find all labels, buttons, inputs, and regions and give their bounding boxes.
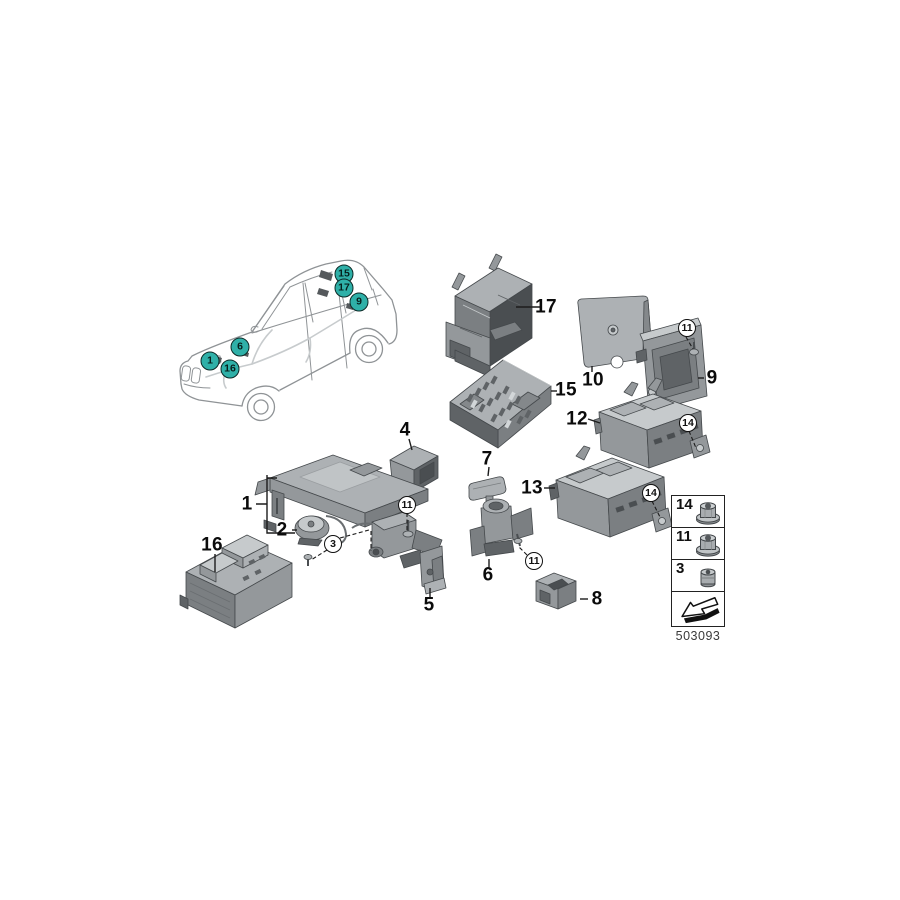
part-label-9-3[interactable]: 9 <box>707 369 718 388</box>
part-6-drawing <box>470 499 533 556</box>
fastener-callout-11-0[interactable]: 11 <box>678 319 696 337</box>
legend-label: 3 <box>676 561 684 578</box>
part-15-drawing <box>450 360 551 448</box>
part-label-4-6[interactable]: 4 <box>400 421 411 440</box>
legend-row-11[interactable]: 11 <box>672 528 724 560</box>
car-callout-1-4[interactable]: 1 <box>201 352 220 371</box>
fastener-callout-14-2[interactable]: 14 <box>642 484 660 502</box>
fastener-callout-11-5[interactable]: 11 <box>525 552 543 570</box>
part-label-6-11[interactable]: 6 <box>483 566 494 585</box>
part-8-drawing <box>536 573 576 609</box>
flange-nut-icon <box>693 500 723 526</box>
legend-label: 14 <box>676 497 693 514</box>
part-17-drawing <box>446 254 532 377</box>
flange-nut-icon <box>693 532 723 558</box>
part-5-drawing <box>420 546 446 594</box>
car-callout-6-3[interactable]: 6 <box>231 338 250 357</box>
part-label-2-9[interactable]: 2 <box>277 521 288 540</box>
fastener-legend: 14 11 3 <box>671 495 725 627</box>
part-label-8-12[interactable]: 8 <box>592 590 603 609</box>
part-label-16-13[interactable]: 16 <box>201 536 223 555</box>
part-label-15-1[interactable]: 15 <box>555 381 577 400</box>
car-callout-9-2[interactable]: 9 <box>350 293 369 312</box>
part-label-17-0[interactable]: 17 <box>535 298 557 317</box>
part-label-1-8[interactable]: 1 <box>242 495 253 514</box>
part-label-13-5[interactable]: 13 <box>521 479 543 498</box>
car-outline-drawing <box>180 260 397 420</box>
fastener-callout-3-4[interactable]: 3 <box>324 535 342 553</box>
cap-nut-icon <box>693 564 723 590</box>
car-callout-17-1[interactable]: 17 <box>335 279 354 298</box>
direction-arrow-icon <box>675 594 721 624</box>
fastener-callout-14-1[interactable]: 14 <box>679 414 697 432</box>
part-label-12-4[interactable]: 12 <box>566 410 588 429</box>
diagram-code: 503093 <box>650 629 746 643</box>
part-16-drawing <box>180 535 292 628</box>
legend-row-direction <box>672 592 724 626</box>
car-component-markers <box>210 270 354 371</box>
legend-label: 11 <box>676 529 692 546</box>
legend-row-14[interactable]: 14 <box>672 496 724 528</box>
legend-row-3[interactable]: 3 <box>672 560 724 592</box>
parts-diagram-page: 151796116 17151091213471256816 111414113… <box>0 0 900 900</box>
car-callout-16-5[interactable]: 16 <box>221 360 240 379</box>
fastener-callout-11-3[interactable]: 11 <box>398 496 416 514</box>
part-7-drawing <box>469 477 506 501</box>
part-label-5-10[interactable]: 5 <box>424 596 435 615</box>
parts-illustration <box>0 0 900 900</box>
part-label-10-2[interactable]: 10 <box>582 371 604 390</box>
part-label-7-7[interactable]: 7 <box>482 450 493 469</box>
